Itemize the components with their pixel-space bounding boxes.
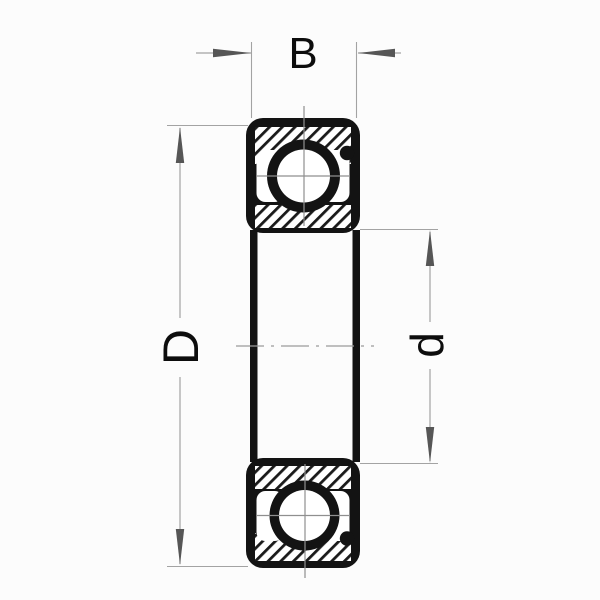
arrow-down-icon <box>176 529 184 565</box>
dimension-D: D <box>153 126 248 567</box>
bearing-drawing-canvas: B D d <box>0 0 600 600</box>
arrow-right-icon <box>213 49 251 58</box>
arrow-up-icon <box>176 127 184 163</box>
snap-ring-groove <box>340 531 354 545</box>
bearing-diagram: B D d <box>0 0 600 600</box>
dimension-B: B <box>196 29 401 118</box>
dim-label-D: D <box>153 329 209 365</box>
arrow-up-icon <box>426 230 434 266</box>
bearing-section-top <box>246 106 360 233</box>
bearing-section-bottom <box>246 458 360 578</box>
dim-label-B: B <box>288 29 317 78</box>
snap-ring-groove <box>340 146 354 160</box>
arrow-left-icon <box>358 49 395 58</box>
arrow-down-icon <box>426 427 434 463</box>
dim-label-d: d <box>401 332 453 358</box>
